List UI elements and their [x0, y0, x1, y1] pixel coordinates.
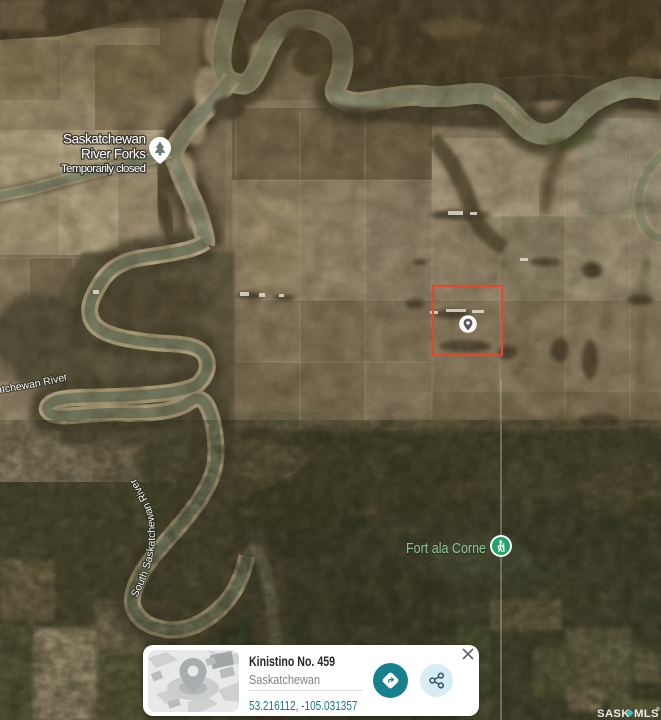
svg-text:Saskatchewan: Saskatchewan: [63, 132, 146, 147]
svg-text:Fort ala Corne: Fort ala Corne: [406, 540, 486, 557]
svg-text:River Forks: River Forks: [81, 147, 146, 162]
svg-text:SASK: SASK: [597, 708, 630, 720]
svg-text:®: ®: [656, 706, 661, 713]
svg-text:Temporarily closed: Temporarily closed: [61, 163, 146, 175]
